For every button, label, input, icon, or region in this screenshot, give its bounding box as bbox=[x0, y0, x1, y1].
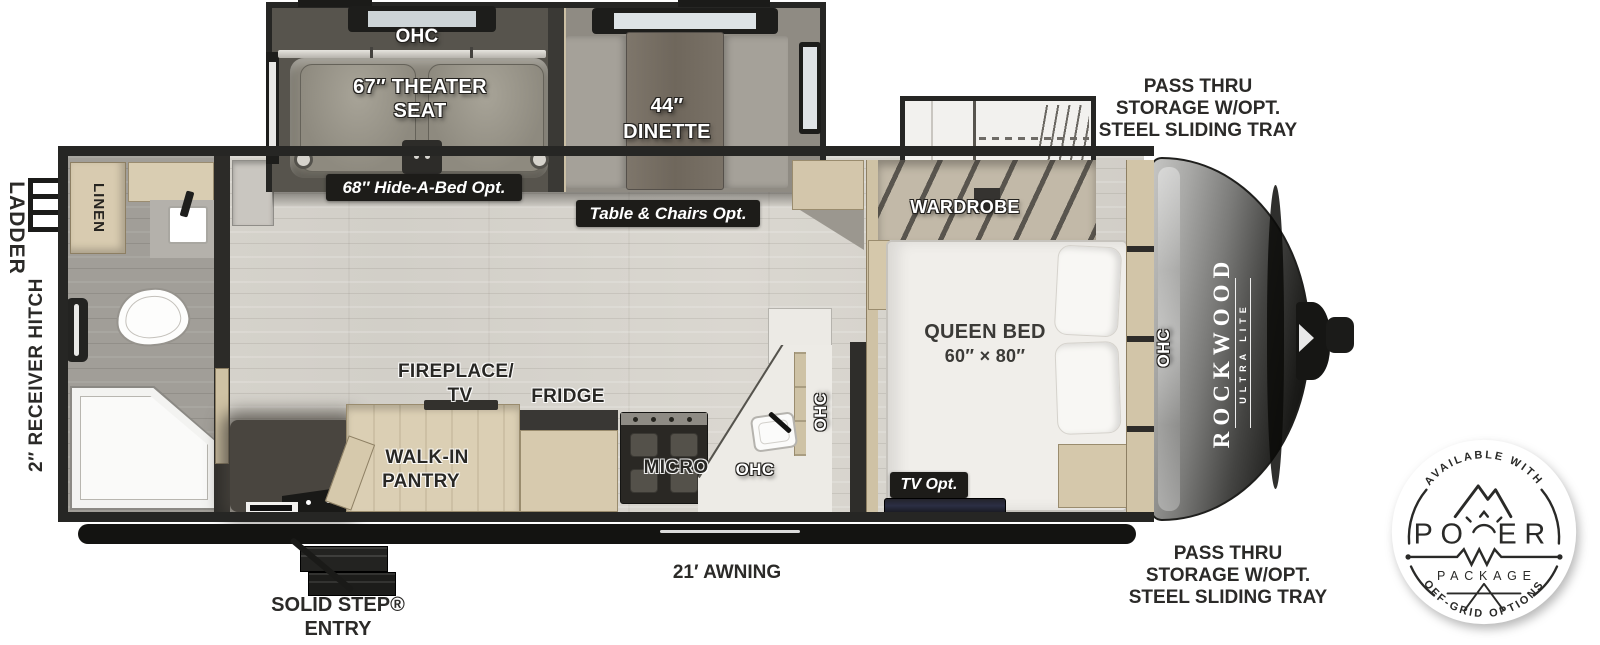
window-glass bbox=[368, 11, 476, 27]
ohc-living-label: OHC bbox=[377, 26, 457, 48]
cap-accent-band bbox=[1267, 185, 1284, 489]
pass-thru-bottom-line2: STORAGE W/OPT. bbox=[1118, 565, 1338, 587]
pass-thru-storage-label-top: PASS THRU STORAGE W/OPT. STEEL SLIDING T… bbox=[1088, 76, 1308, 142]
pass-thru-storage-label-bottom: PASS THRU STORAGE W/OPT. STEEL SLIDING T… bbox=[1118, 543, 1338, 609]
solid-step-label-line1: SOLID STEP® bbox=[258, 594, 418, 617]
ohc-bedroom-label: OHC bbox=[1154, 318, 1172, 378]
badge-power-right: ER bbox=[1497, 519, 1552, 551]
floorplan-canvas: LADDER 2″ RECEIVER HITCH ROCKWOOD ULTRA … bbox=[0, 0, 1600, 645]
pass-thru-bottom-line3: STEEL SLIDING TRAY bbox=[1118, 587, 1338, 609]
ladder-rung bbox=[33, 194, 59, 199]
solid-step-label-line2: ENTRY bbox=[288, 618, 388, 641]
power-package-badge: AVAILABLE WITH PO ER PACKAGE OFF-GRID OP… bbox=[1388, 436, 1580, 628]
hitch-coupler-highlight bbox=[1299, 324, 1314, 352]
dinette-label-line2: DINETTE bbox=[597, 121, 737, 144]
pass-thru-top-line1: PASS THRU bbox=[1088, 76, 1308, 98]
ladder-label: LADDER bbox=[0, 148, 28, 308]
line-end-dot bbox=[1557, 554, 1562, 559]
brand-logo: ROCKWOOD bbox=[1209, 237, 1235, 467]
brand-sub-logo: ULTRA LITE bbox=[1235, 278, 1251, 428]
dinette-window bbox=[592, 8, 778, 34]
ohc-cabinet-rod bbox=[278, 50, 546, 58]
badge-power-left: PO bbox=[1414, 519, 1471, 551]
step-tread bbox=[308, 572, 396, 596]
window-glass bbox=[803, 47, 817, 129]
theater-label-line1: 67″ THEATER bbox=[320, 76, 520, 99]
pass-thru-top-line2: STORAGE W/OPT. bbox=[1088, 98, 1308, 120]
dinette-label-line1: 44″ bbox=[627, 95, 707, 118]
awning-bar bbox=[78, 524, 1136, 544]
pass-thru-top-line3: STEEL SLIDING TRAY bbox=[1088, 120, 1308, 142]
slide-side-window bbox=[799, 42, 821, 134]
trailer-walls bbox=[58, 146, 1154, 522]
slide-exterior-trim bbox=[678, 0, 770, 7]
theater-label-line2: SEAT bbox=[370, 100, 470, 123]
awning-label: 21′ AWNING bbox=[647, 562, 807, 584]
receiver-hitch-label: 2″ RECEIVER HITCH bbox=[26, 255, 54, 495]
line-end-dot bbox=[1405, 554, 1410, 559]
window-glass bbox=[269, 62, 276, 154]
pass-thru-bottom-line1: PASS THRU bbox=[1118, 543, 1338, 565]
ladder-rung bbox=[33, 210, 59, 215]
window-glass bbox=[614, 13, 756, 29]
badge-package: PACKAGE bbox=[1437, 569, 1537, 583]
tongue-jack bbox=[1326, 317, 1354, 353]
awning-highlight bbox=[660, 530, 800, 533]
